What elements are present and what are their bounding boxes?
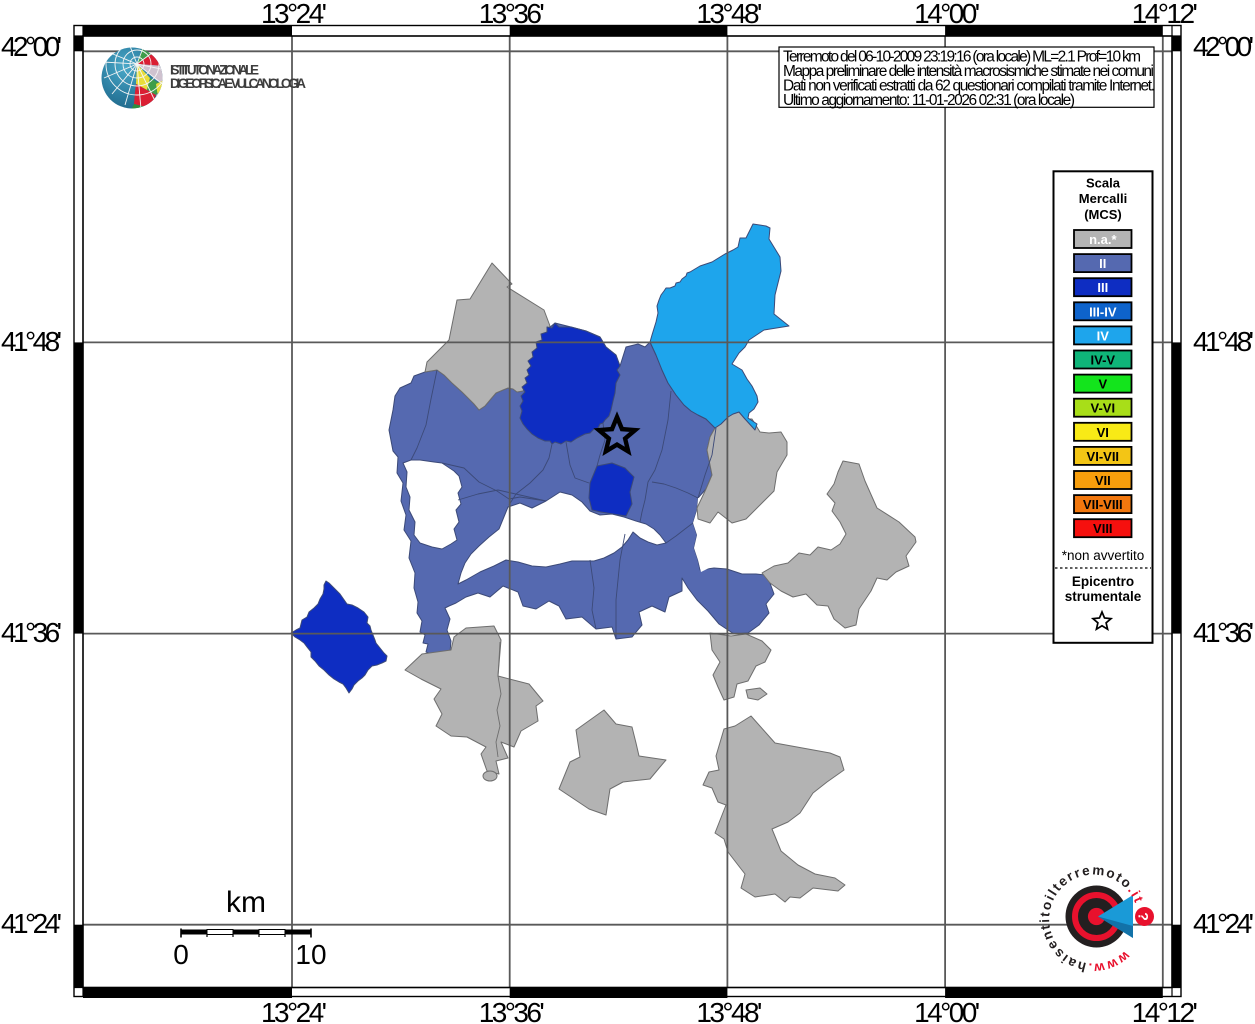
svg-text:41°48': 41°48' bbox=[1, 326, 62, 357]
svg-text:Epicentro: Epicentro bbox=[1072, 574, 1134, 589]
svg-text:strumentale: strumentale bbox=[1065, 589, 1142, 604]
svg-text:41°36': 41°36' bbox=[1193, 617, 1254, 648]
svg-text:n.a.*: n.a.* bbox=[1089, 232, 1117, 247]
svg-text:41°36': 41°36' bbox=[1, 617, 62, 648]
svg-text:DI GEOFISICA E VULCANOLOGIA: DI GEOFISICA E VULCANOLOGIA bbox=[170, 76, 306, 91]
svg-text:42°00': 42°00' bbox=[1, 31, 62, 62]
svg-text:0: 0 bbox=[173, 939, 189, 970]
svg-text:?: ? bbox=[1136, 912, 1152, 921]
svg-text:III-IV: III-IV bbox=[1089, 304, 1117, 319]
svg-text:VII-VIII: VII-VIII bbox=[1083, 497, 1123, 512]
svg-text:*non avvertito: *non avvertito bbox=[1062, 548, 1145, 563]
svg-text:13°48': 13°48' bbox=[696, 997, 762, 1024]
svg-text:13°24': 13°24' bbox=[261, 997, 327, 1024]
svg-text:V-VI: V-VI bbox=[1091, 401, 1116, 416]
svg-text:VI: VI bbox=[1097, 425, 1109, 440]
svg-text:14°00': 14°00' bbox=[914, 997, 980, 1024]
svg-text:14°00': 14°00' bbox=[914, 0, 980, 29]
svg-text:41°24': 41°24' bbox=[1, 908, 62, 939]
svg-text:13°36': 13°36' bbox=[479, 0, 545, 29]
svg-text:10: 10 bbox=[295, 939, 326, 970]
svg-text:II: II bbox=[1099, 256, 1106, 271]
svg-text:Mercalli: Mercalli bbox=[1079, 191, 1127, 206]
svg-text:V: V bbox=[1098, 377, 1107, 392]
svg-text:13°48': 13°48' bbox=[696, 0, 762, 29]
svg-text:42°00': 42°00' bbox=[1193, 31, 1254, 62]
svg-text:41°48': 41°48' bbox=[1193, 326, 1254, 357]
svg-text:41°24': 41°24' bbox=[1193, 908, 1254, 939]
svg-text:km: km bbox=[226, 886, 266, 919]
svg-text:III: III bbox=[1097, 280, 1108, 295]
svg-text:IV: IV bbox=[1097, 328, 1110, 343]
svg-text:13°36': 13°36' bbox=[479, 997, 545, 1024]
svg-text:13°24': 13°24' bbox=[261, 0, 327, 29]
svg-text:Ultimo aggiornamento: 11-01-20: Ultimo aggiornamento: 11-01-2026 02:31 (… bbox=[783, 92, 1075, 109]
svg-text:VII: VII bbox=[1095, 473, 1111, 488]
svg-text:IV-V: IV-V bbox=[1091, 353, 1116, 368]
svg-text:Scala: Scala bbox=[1086, 176, 1121, 191]
svg-text:(MCS): (MCS) bbox=[1084, 207, 1122, 222]
svg-text:14°12': 14°12' bbox=[1132, 0, 1198, 29]
svg-text:14°12': 14°12' bbox=[1132, 997, 1198, 1024]
svg-text:VIII: VIII bbox=[1093, 521, 1113, 536]
svg-text:VI-VII: VI-VII bbox=[1087, 449, 1120, 464]
